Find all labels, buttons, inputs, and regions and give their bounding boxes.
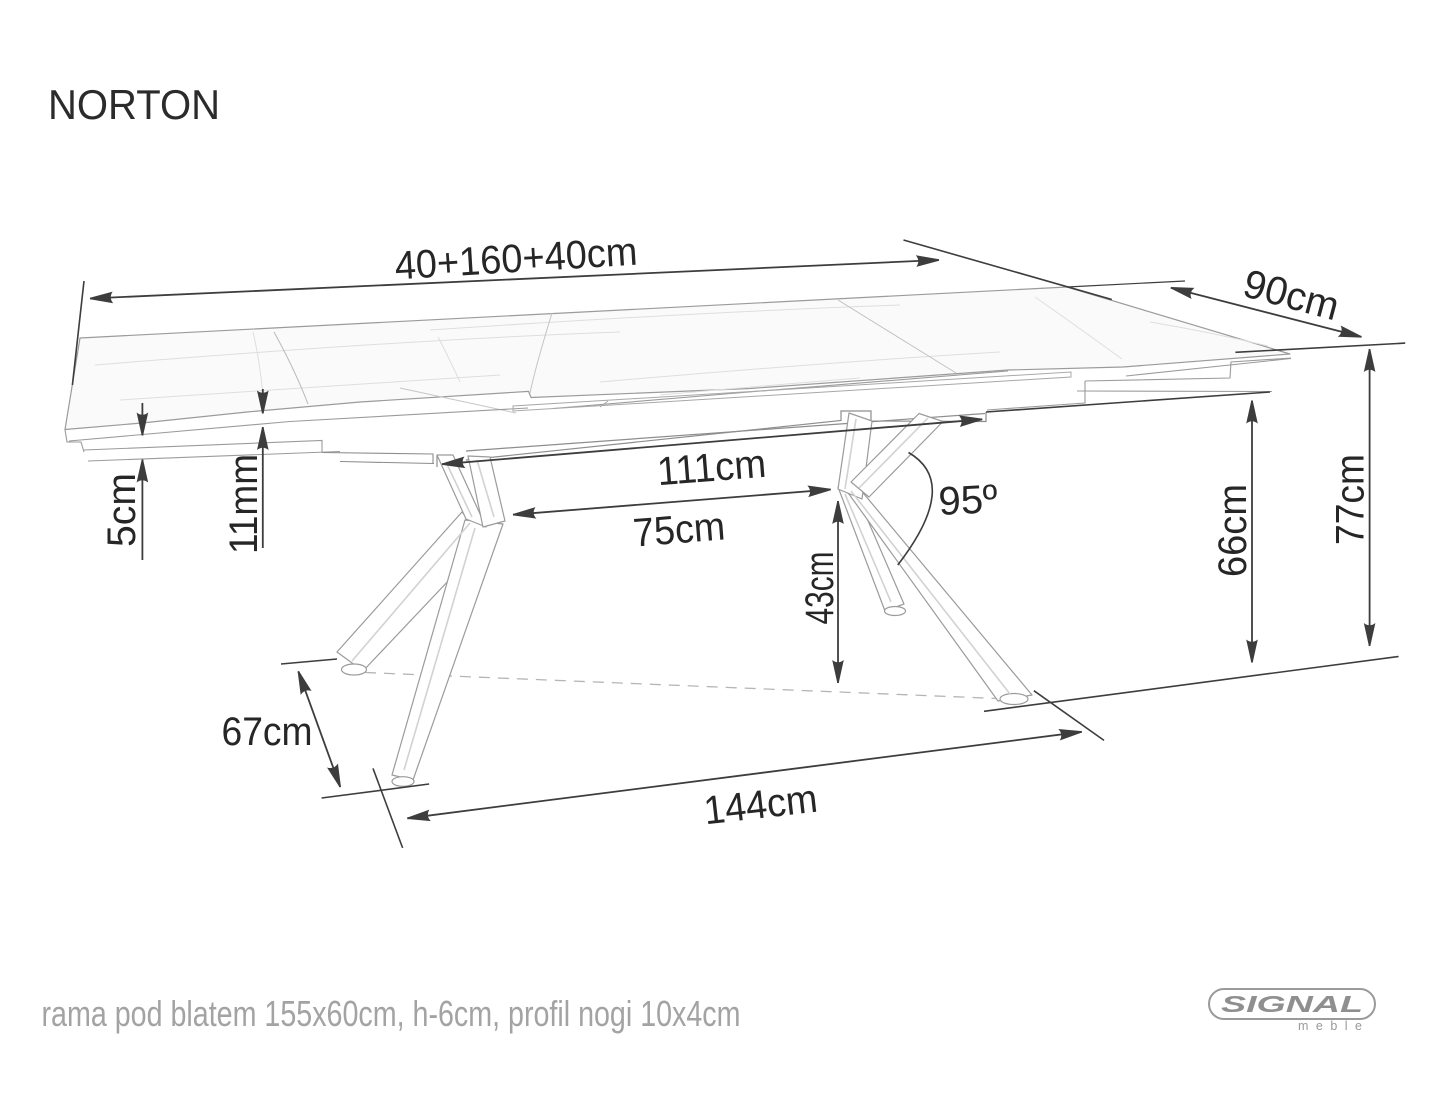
svg-text:11mm: 11mm [222,454,266,554]
svg-text:75cm: 75cm [631,504,726,555]
svg-text:144cm: 144cm [701,777,819,834]
svg-text:66cm: 66cm [1211,484,1255,577]
svg-text:40+160+40cm: 40+160+40cm [393,230,638,289]
svg-text:rama pod blatem 155x60cm, h-6c: rama pod blatem 155x60cm, h-6cm, profil … [42,993,741,1034]
svg-text:67cm: 67cm [222,710,313,754]
svg-text:77cm: 77cm [1328,454,1372,545]
svg-text:111cm: 111cm [656,442,768,494]
svg-text:SIGNAL: SIGNAL [1221,991,1363,1017]
svg-text:5cm: 5cm [100,473,144,547]
svg-text:95º: 95º [937,477,999,524]
svg-text:meble: meble [1298,1019,1362,1033]
svg-text:NORTON: NORTON [48,81,220,128]
svg-text:43cm: 43cm [798,552,842,625]
